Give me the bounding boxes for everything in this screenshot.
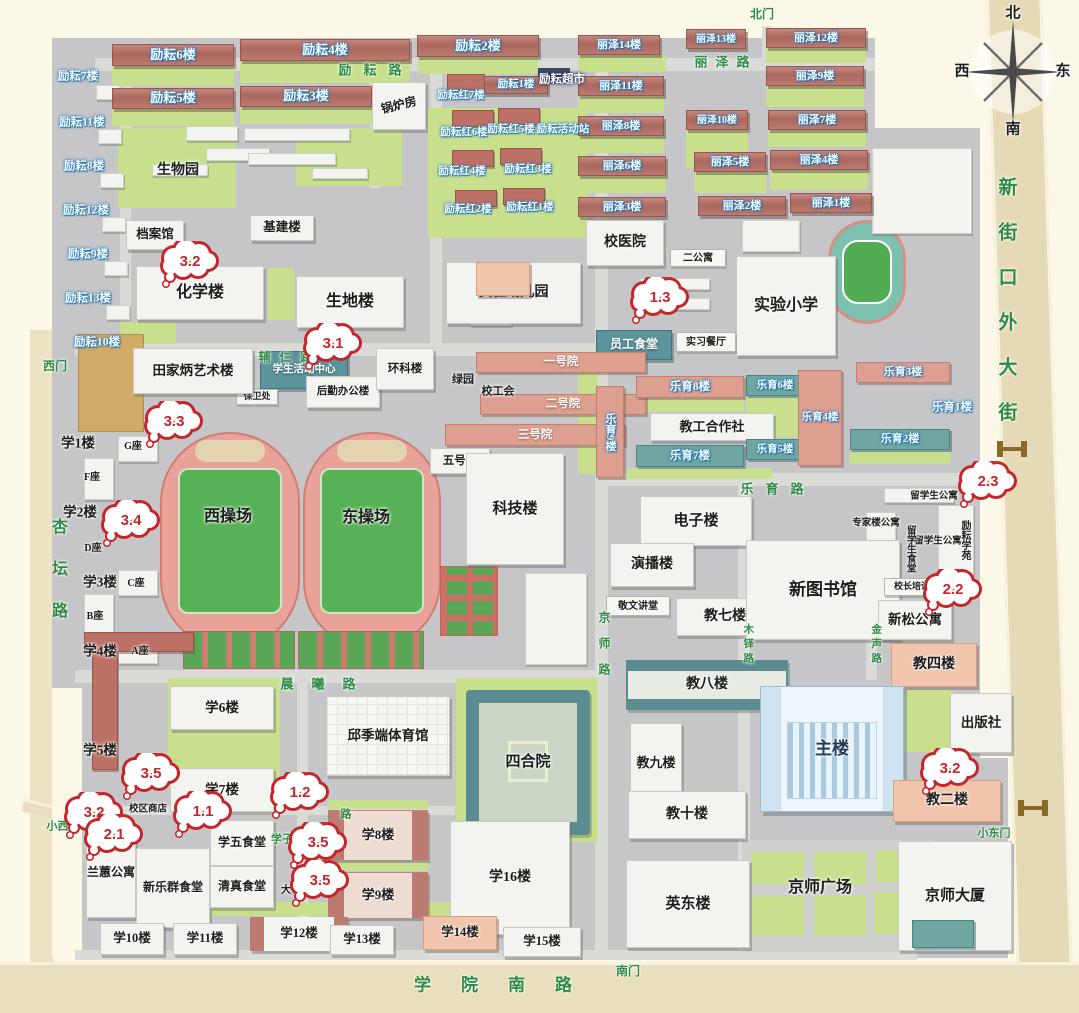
map-shape [842, 240, 892, 304]
map-label: B座 [87, 612, 104, 622]
rating-badge: 3.1 [301, 323, 365, 373]
map-label: 京师广场 [788, 880, 852, 896]
building-label: 田家炳艺术楼 [153, 364, 234, 379]
building-label: 四合院 [505, 754, 550, 771]
map-shape [768, 130, 866, 147]
map-label: 北 [1005, 7, 1020, 22]
map-shape [100, 173, 124, 188]
map-building: 实验小学 [736, 256, 836, 356]
map-shape [578, 55, 666, 72]
building-label: 学8楼 [362, 828, 395, 842]
building-label: 乐育3楼 [884, 366, 923, 378]
map-building: 教四楼 [891, 643, 977, 687]
map-shape [752, 896, 804, 936]
building-label: 丽泽6楼 [603, 160, 642, 172]
map-shape [694, 172, 766, 193]
map-building: 乐育2楼 [850, 429, 950, 450]
svg-text:2.3: 2.3 [978, 473, 999, 490]
map-shape [500, 148, 542, 165]
building-label: 生地楼 [326, 293, 374, 311]
building-label: 丽泽7楼 [798, 114, 837, 126]
map-building: 丽泽1楼 [790, 193, 872, 213]
map-shape [268, 268, 294, 320]
map-label: 专家楼公寓 [852, 519, 900, 529]
map-shape [337, 440, 407, 462]
building-label: 励耘2楼 [455, 39, 501, 53]
building-label: 演播楼 [631, 557, 673, 572]
map-building: 学14楼 [423, 916, 497, 950]
map-building [912, 920, 974, 948]
building-label: 励耘6楼 [150, 48, 196, 62]
building-label: 后勤办公楼 [317, 386, 370, 398]
building-label: 环科楼 [388, 363, 423, 376]
map-shape [312, 168, 368, 179]
rating-badge: 3.5 [288, 860, 352, 910]
map-building: 丽泽12楼 [766, 28, 866, 48]
map-building: 丽泽4楼 [770, 150, 868, 170]
building-label: 锅炉房 [380, 95, 418, 117]
map-label: 励耘红3楼 [504, 165, 551, 176]
map-shape [578, 96, 664, 113]
map-building: 丽泽14楼 [578, 35, 660, 55]
west-field [178, 468, 282, 614]
building-label: 学10楼 [113, 932, 151, 946]
building-label: 英东楼 [665, 896, 710, 913]
map-building: 学6楼 [170, 686, 274, 730]
building-label: 丽泽5楼 [711, 156, 750, 168]
map-label: 南门 [616, 965, 640, 977]
map-label: 励耘红6楼 [440, 128, 487, 139]
building-label: 乐育7楼 [670, 450, 710, 463]
map-label: 北门 [750, 8, 774, 20]
map-building: 实习餐厅 [676, 332, 736, 352]
map-shape [850, 452, 950, 464]
building-label: 档案馆 [136, 228, 174, 242]
building-label: 员工食堂 [610, 338, 658, 351]
building-label: 丽泽8楼 [602, 120, 641, 132]
map-shape [418, 57, 538, 74]
building-label: 丽泽4楼 [800, 154, 839, 166]
svg-text:2.2: 2.2 [943, 581, 964, 598]
map-building: 学13楼 [330, 925, 394, 955]
xingtan-road-strip [30, 330, 54, 1013]
map-building: 锅炉房 [372, 82, 426, 130]
building-label: 乐育8楼 [670, 381, 710, 394]
map-label: 励耘活动站 [537, 125, 590, 136]
building-label: 科技楼 [492, 501, 537, 518]
building-label: 乐育5楼 [757, 444, 794, 456]
map-building: 丽泽2楼 [698, 196, 786, 216]
map-building: 演播楼 [610, 543, 694, 587]
map-shape [770, 170, 868, 190]
map-shape [766, 47, 866, 63]
building-label: 乐育6楼 [757, 380, 794, 392]
building-label: 学13楼 [343, 933, 381, 947]
map-shape [447, 74, 485, 90]
building-label: 学11楼 [187, 932, 224, 946]
map-building: 电子楼 [640, 496, 752, 546]
map-label: 乐育1楼 [932, 402, 972, 414]
map-building: 乐育7楼 [636, 445, 744, 467]
building-label: 二号院 [546, 398, 581, 411]
map-building: 科技楼 [466, 453, 564, 565]
map-building: 丽泽7楼 [768, 110, 866, 130]
svg-text:3.5: 3.5 [141, 765, 162, 782]
map-building: 励耘4楼 [240, 39, 410, 61]
map-label: 生物园 [157, 164, 199, 178]
map-building: 乐育4楼 [798, 370, 842, 466]
map-label: 学2楼 [63, 505, 97, 519]
svg-text:3.2: 3.2 [940, 760, 961, 777]
map-label: 励耘超市 [539, 74, 585, 86]
map-label: 东操场 [342, 510, 390, 526]
map-building: 基建楼 [250, 215, 314, 241]
gate-icon [1018, 800, 1048, 816]
building-label: 学9楼 [362, 888, 395, 902]
map-label: 校工会 [482, 387, 515, 398]
map-shape [742, 220, 800, 252]
map-shape [106, 305, 130, 320]
building-label: 教九楼 [636, 756, 675, 770]
building-label: 新图书馆 [789, 581, 857, 600]
building-label: 实习餐厅 [686, 337, 726, 348]
map-building: 一号院 [476, 352, 646, 373]
map-building: 教十楼 [628, 791, 746, 839]
map-building: 励耘3楼 [240, 86, 372, 107]
map-label: 东 [1055, 65, 1070, 80]
map-shape [102, 217, 126, 232]
building-label: 清真食堂 [218, 880, 266, 893]
map-shape [578, 136, 664, 153]
map-label: 励耘红2楼 [444, 205, 491, 216]
building-label: 基建楼 [263, 221, 301, 235]
map-shape [636, 399, 744, 412]
map-shape [766, 86, 864, 107]
map-building: 学15楼 [503, 927, 581, 957]
map-building: 出版社 [950, 693, 1012, 753]
map-building: 英东楼 [626, 860, 750, 948]
map-label: 励耘9楼 [68, 249, 108, 261]
map-shape [498, 108, 540, 125]
building-label: 丽泽3楼 [603, 201, 642, 213]
map-building: 教工合作社 [650, 413, 774, 441]
map-label: 励耘8楼 [64, 161, 104, 173]
map-label: 西操场 [204, 509, 252, 525]
building-label: 丽泽1楼 [812, 197, 851, 209]
svg-text:3.5: 3.5 [310, 872, 331, 889]
map-building: 乐育6楼 [746, 375, 804, 396]
map-label: A座 [131, 647, 148, 657]
map-label: 留学生公寓 [910, 492, 958, 502]
map-label: 励耘11楼 [59, 117, 104, 129]
building-label: 丽泽12楼 [794, 32, 838, 44]
building-label: 一号院 [544, 356, 579, 369]
building-label: 丽泽10楼 [697, 115, 737, 126]
map-label: 小东门 [978, 829, 1011, 840]
map-building: 新乐群食堂 [136, 848, 210, 928]
map-shape [452, 150, 494, 167]
map-shape [244, 128, 350, 141]
east-field [320, 468, 424, 614]
map-label: 杏坛路 [49, 518, 65, 644]
map-label: 丽泽路 [694, 56, 757, 69]
courts [183, 631, 295, 669]
building-label: 兰蕙公寓 [87, 866, 135, 879]
map-building: 校医院 [586, 220, 664, 266]
building-label: 教工合作社 [679, 420, 744, 434]
rating-badge: 3.3 [142, 401, 206, 451]
map-shape [626, 468, 772, 479]
map-building: 清真食堂 [210, 866, 274, 908]
map-label: 绿园 [452, 375, 474, 386]
map-label: 励耘13楼 [65, 293, 111, 305]
map-shape [578, 176, 666, 193]
building-label: 丽泽11楼 [599, 80, 642, 92]
building-label: 学12楼 [280, 927, 318, 941]
map-building: 丽泽11楼 [578, 76, 664, 96]
map-building: 乐育5楼 [746, 439, 804, 460]
map-label: 励耘路 [338, 64, 413, 77]
map-label: 学4楼 [83, 644, 117, 658]
svg-text:3.1: 3.1 [323, 335, 344, 352]
map-label: 学5楼 [83, 743, 117, 757]
map-building: 学10楼 [100, 923, 164, 955]
map-building: 学11楼 [173, 923, 237, 955]
building-label: 主楼 [815, 740, 849, 759]
building-label: 丽泽2楼 [723, 200, 762, 212]
map-label: C座 [127, 579, 144, 589]
map-label: 励耘红5楼 [487, 125, 534, 136]
svg-text:1.2: 1.2 [290, 784, 311, 801]
rating-badge: 2.2 [921, 569, 985, 619]
map-building: 丽泽10楼 [686, 110, 748, 130]
rating-badge: 1.1 [171, 791, 235, 841]
map-shape [186, 126, 238, 141]
map-building: 田家炳艺术楼 [133, 348, 253, 394]
building-label: 乐育4楼 [802, 412, 839, 424]
map-building: 主楼 [760, 686, 904, 812]
courts [440, 566, 498, 636]
map-building: 环科楼 [376, 348, 434, 390]
building-label: 乐育9楼 [604, 413, 616, 452]
building-label: 新乐群食堂 [143, 881, 203, 894]
building-label: 励耘4楼 [302, 43, 348, 57]
map-label: 学1楼 [61, 436, 95, 450]
compass-icon [958, 12, 1068, 137]
building-label: 丽泽14楼 [597, 39, 641, 51]
svg-text:1.3: 1.3 [650, 289, 671, 306]
building-label: 敬文讲堂 [618, 601, 658, 612]
map-building: 丽泽5楼 [694, 152, 766, 172]
building-label: 丽泽13楼 [696, 34, 736, 45]
building-label: 励耘1楼 [498, 79, 535, 91]
map-label: 西门 [43, 360, 67, 372]
building-label: 教十楼 [666, 807, 708, 822]
map-shape [112, 66, 234, 86]
map-building: 励耘2楼 [417, 35, 539, 57]
map-building: 乐育3楼 [856, 362, 950, 383]
map-label: 新街口外大街 [997, 177, 1016, 447]
map-shape [248, 153, 336, 165]
map-label: G座 [124, 442, 142, 452]
map-shape [525, 573, 587, 665]
map-building: 二公寓 [670, 249, 726, 267]
map-shape [240, 107, 372, 124]
map-label: 励耘学苑 [959, 520, 969, 560]
building-label: 学16楼 [489, 870, 531, 885]
map-label: 晨曦路 [280, 678, 373, 691]
map-shape [578, 364, 598, 474]
map-label: 金声路 [870, 623, 881, 667]
map-building: 丽泽9楼 [766, 66, 864, 86]
building-label: 邱季端体育馆 [348, 729, 429, 744]
map-building: 丽泽3楼 [578, 197, 666, 217]
map-label: 路 [341, 810, 352, 821]
map-building: 后勤办公楼 [306, 376, 380, 408]
map-building: 四合院 [466, 690, 590, 835]
map-label: F座 [84, 473, 100, 483]
building-label: 三号院 [518, 429, 553, 442]
courts [298, 631, 424, 669]
building-label: 教七楼 [704, 609, 746, 624]
building-label: 实验小学 [754, 297, 818, 315]
map-label: 励耘红4楼 [438, 167, 485, 178]
rating-badge: 2.3 [956, 461, 1020, 511]
map-label: 南 [1005, 123, 1020, 138]
map-shape [872, 148, 972, 234]
rating-badge: 2.1 [82, 814, 146, 864]
map-shape [814, 896, 866, 936]
building-label: 励耘3楼 [283, 89, 329, 103]
building-label: 学15楼 [523, 935, 561, 949]
building-label: 教八楼 [686, 677, 728, 692]
map-label: 励耘红7楼 [437, 91, 484, 102]
map-label: 木铎路 [742, 623, 753, 667]
building-label: 教四楼 [913, 657, 955, 672]
map-building: 敬文讲堂 [606, 596, 670, 616]
svg-text:3.2: 3.2 [180, 253, 201, 270]
rating-badge: 3.4 [99, 500, 163, 550]
building-label: 乐育2楼 [881, 433, 920, 445]
building-label: 学6楼 [205, 701, 239, 716]
building-label: 京师大厦 [925, 888, 985, 905]
map-building: 乐育9楼 [596, 386, 624, 478]
map-shape [98, 129, 122, 144]
map-label: 京师路 [598, 611, 610, 689]
rating-badge: 3.2 [158, 241, 222, 291]
building-label: 丽泽9楼 [796, 70, 835, 82]
building-label: 二公寓 [683, 253, 713, 264]
rating-badge: 1.2 [268, 772, 332, 822]
map-label: 学3楼 [83, 575, 117, 589]
rating-badge: 3.2 [918, 748, 982, 798]
map-building: 邱季端体育馆 [326, 696, 450, 776]
building-label: 出版社 [961, 716, 1002, 731]
map-label: 留学生食堂 [904, 525, 914, 573]
building-label: 电子楼 [673, 513, 718, 530]
building-label: 励耘5楼 [150, 91, 196, 105]
map-label: 励耘12楼 [63, 205, 109, 217]
map-building: 丽泽13楼 [686, 29, 746, 49]
map-label: 乐育路 [740, 483, 815, 496]
map-label: 励耘7楼 [58, 71, 98, 83]
building-label: 学14楼 [441, 926, 479, 940]
map-building: 励耘5楼 [112, 88, 234, 109]
svg-text:3.4: 3.4 [121, 512, 143, 529]
map-label: 留学生公寓 [914, 537, 962, 547]
rating-badge: 1.3 [628, 277, 692, 327]
map-building: 丽泽6楼 [578, 156, 666, 176]
map-building: 生地楼 [296, 276, 404, 328]
building-label: 校医院 [604, 235, 646, 250]
map-building: 乐育8楼 [636, 376, 744, 398]
map-label: 西 [954, 65, 969, 80]
svg-text:3.5: 3.5 [308, 834, 329, 851]
map-building: 丽泽8楼 [578, 116, 664, 136]
map-label: 学院南路 [414, 977, 602, 994]
svg-text:1.1: 1.1 [193, 803, 214, 820]
svg-text:2.1: 2.1 [104, 826, 125, 843]
map-building [476, 262, 530, 296]
map-building: 励耘6楼 [112, 44, 234, 66]
campus-map: 励耘6楼励耘4楼励耘2楼丽泽14楼丽泽13楼丽泽12楼励耘5楼励耘3楼励耘1楼丽… [0, 0, 1079, 1013]
map-shape [112, 109, 234, 126]
map-label: 励耘10楼 [74, 337, 120, 349]
svg-text:3.3: 3.3 [164, 413, 185, 430]
map-shape [104, 261, 128, 276]
map-label: 励耘红1楼 [506, 203, 553, 214]
